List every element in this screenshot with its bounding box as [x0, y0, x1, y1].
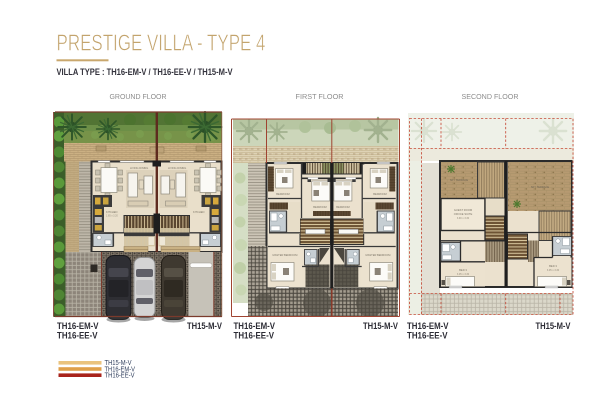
svg-text:TH16-EM-V: TH16-EM-V — [57, 321, 99, 331]
svg-text:BEDROOM: BEDROOM — [336, 205, 349, 209]
svg-text:TH15-M-V: TH15-M-V — [536, 321, 571, 331]
svg-text:LIVING DINING: LIVING DINING — [168, 166, 186, 170]
svg-text:TH15-M-V: TH15-M-V — [187, 321, 222, 331]
svg-text:BEDROOM: BEDROOM — [373, 192, 386, 196]
svg-text:BEDROOM: BEDROOM — [313, 205, 326, 209]
svg-text:3.90 x 3.30: 3.90 x 3.30 — [457, 217, 470, 220]
svg-text:LIVING DINING: LIVING DINING — [130, 166, 148, 170]
svg-text:MASTER BEDROOM: MASTER BEDROOM — [366, 253, 391, 257]
svg-text:SKY TERRACE: SKY TERRACE — [450, 178, 468, 182]
svg-text:SKY TERRACE: SKY TERRACE — [531, 185, 549, 189]
svg-text:1.85 x 3.20: 1.85 x 3.20 — [106, 215, 118, 218]
svg-text:TH16-EE-V: TH16-EE-V — [234, 331, 275, 341]
svg-text:FIRST FLOOR: FIRST FLOOR — [296, 94, 344, 101]
svg-text:BED 3: BED 3 — [459, 268, 467, 272]
svg-text:GROUND FLOOR: GROUND FLOOR — [110, 94, 167, 101]
svg-text:TH16-EE-V: TH16-EE-V — [105, 371, 135, 380]
svg-text:VILLA TYPE : TH16-EM-V / TH16: VILLA TYPE : TH16-EM-V / TH16-EE-V / TH1… — [57, 67, 233, 78]
svg-text:TH16-EE-V: TH16-EE-V — [57, 331, 98, 341]
svg-text:TH15-M-V: TH15-M-V — [363, 321, 398, 331]
svg-text:TH16-EM-V: TH16-EM-V — [234, 321, 276, 331]
svg-text:3.05 x 3.30: 3.05 x 3.30 — [457, 273, 470, 276]
svg-text:PRESTIGE VILLA - TYPE 4: PRESTIGE VILLA - TYPE 4 — [57, 30, 266, 56]
svg-text:3.05 x 3.30: 3.05 x 3.30 — [547, 269, 560, 272]
svg-text:SECOND FLOOR: SECOND FLOOR — [462, 94, 519, 101]
svg-text:TH16-EE-V: TH16-EE-V — [407, 331, 448, 341]
svg-text:OFFICE SUITE: OFFICE SUITE — [454, 212, 473, 216]
svg-text:BED 3: BED 3 — [549, 264, 557, 268]
svg-text:KITCHEN: KITCHEN — [106, 210, 118, 214]
svg-text:KITCHEN: KITCHEN — [193, 210, 205, 214]
svg-text:GUEST ROOM: GUEST ROOM — [454, 208, 473, 212]
svg-text:MASTER BEDROOM: MASTER BEDROOM — [273, 253, 298, 257]
svg-text:TH16-EM-V: TH16-EM-V — [407, 321, 449, 331]
svg-text:BEDROOM: BEDROOM — [276, 192, 289, 196]
